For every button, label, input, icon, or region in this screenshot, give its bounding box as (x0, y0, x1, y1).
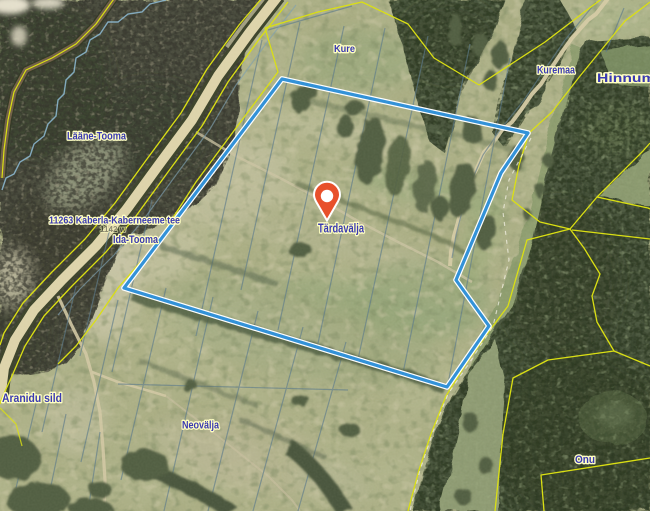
svg-text:Onu: Onu (575, 454, 595, 466)
svg-text:Hinnumäe: Hinnumäe (597, 73, 650, 85)
svg-text:1142 w: 1142 w (100, 225, 127, 234)
svg-text:Kure: Kure (334, 43, 355, 55)
svg-text:Kuremaa: Kuremaa (537, 65, 576, 77)
svg-text:Neovälja: Neovälja (182, 420, 220, 432)
svg-text:Aranidu sild: Aranidu sild (2, 393, 62, 405)
svg-text:Ida-Tooma: Ida-Tooma (113, 234, 159, 246)
svg-text:Lääne-Tooma: Lääne-Tooma (67, 131, 127, 143)
svg-text:Tärdavälja: Tärdavälja (318, 222, 365, 236)
